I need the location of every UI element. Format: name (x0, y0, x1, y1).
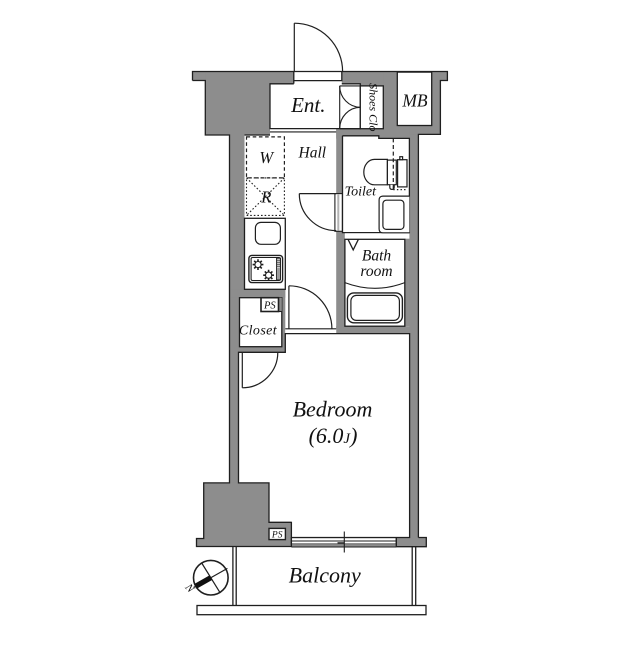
svg-text:MB: MB (401, 90, 428, 110)
svg-text:PS: PS (271, 530, 283, 540)
svg-text:Ent.: Ent. (290, 93, 325, 117)
svg-text:Closet: Closet (239, 324, 278, 339)
svg-text:room: room (360, 263, 392, 280)
svg-text:Shoes Clo: Shoes Clo (366, 83, 380, 131)
svg-text:W: W (259, 148, 274, 167)
svg-text:Balcony: Balcony (289, 563, 361, 588)
svg-text:Toilet: Toilet (345, 184, 377, 199)
svg-text:R: R (260, 187, 271, 206)
svg-text:(6.0J): (6.0J) (309, 423, 358, 448)
svg-text:PS: PS (263, 301, 276, 312)
svg-text:Hall: Hall (298, 145, 327, 162)
svg-text:Bedroom: Bedroom (293, 396, 373, 421)
